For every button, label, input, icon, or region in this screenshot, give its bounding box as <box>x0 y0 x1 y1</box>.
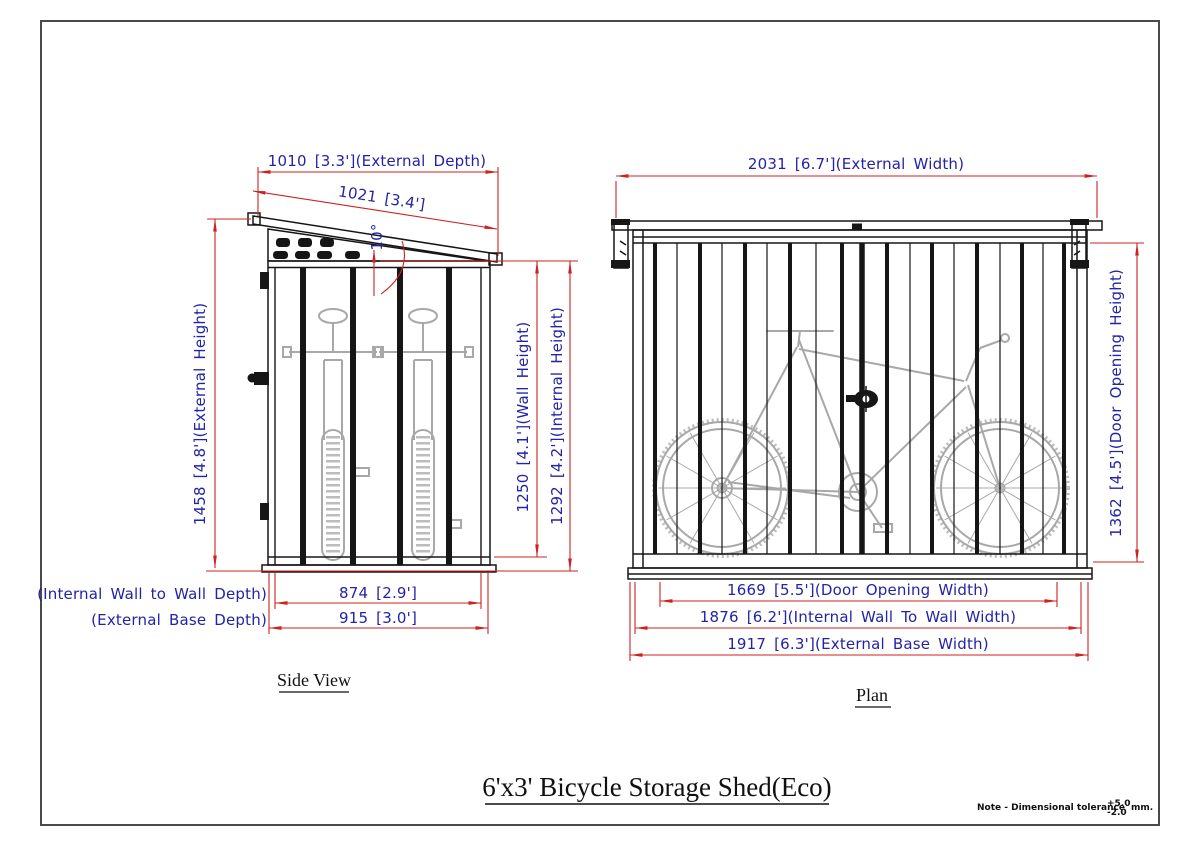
note-unit: mm. <box>1131 803 1153 813</box>
dim-external-width: 2031 [6.7'](External Width) <box>748 155 964 173</box>
drawing-sheet: 1010 [3.3'](External Depth) 1021 [3.4'] … <box>0 0 1200 848</box>
dim-door-opening-width: 1669 [5.5'](Door Opening Width) <box>727 581 989 599</box>
technical-drawing: 1010 [3.3'](External Depth) 1021 [3.4'] … <box>0 0 1200 848</box>
caption-side-view: Side View <box>277 670 351 690</box>
dim-roof-angle: 10° <box>368 223 386 250</box>
value-internal-depth: 874 [2.9'] <box>339 584 417 602</box>
label-external-base-depth: (External Base Depth) <box>91 611 267 629</box>
drawing-title: 6'x3' Bicycle Storage Shed(Eco) <box>482 772 831 802</box>
value-external-base-depth: 915 [3.0'] <box>339 609 417 627</box>
dim-external-depth: 1010 [3.3'](External Depth) <box>268 152 486 170</box>
dim-external-base-width: 1917 [6.3'](External Base Width) <box>727 635 989 653</box>
label-internal-depth: (Internal Wall to Wall Depth) <box>37 585 267 603</box>
dim-wall-height: 1250 [4.1'](Wall Height) <box>514 322 532 513</box>
note-text: Note - Dimensional tolerance <box>977 803 1125 813</box>
title-block: 6'x3' Bicycle Storage Shed(Eco) <box>482 772 831 804</box>
note-tolerance-minus: -2.0 <box>1107 808 1127 818</box>
caption-plan: Plan <box>856 685 888 705</box>
dim-door-opening-height: 1362 [4.5'](Door Opening Height) <box>1107 269 1125 537</box>
dim-internal-width: 1876 [6.2'](Internal Wall To Wall Width) <box>700 608 1016 626</box>
dim-external-height: 1458 [4.8'](External Height) <box>191 303 209 526</box>
dim-internal-height: 1292 [4.2'](Internal Height) <box>548 307 566 525</box>
